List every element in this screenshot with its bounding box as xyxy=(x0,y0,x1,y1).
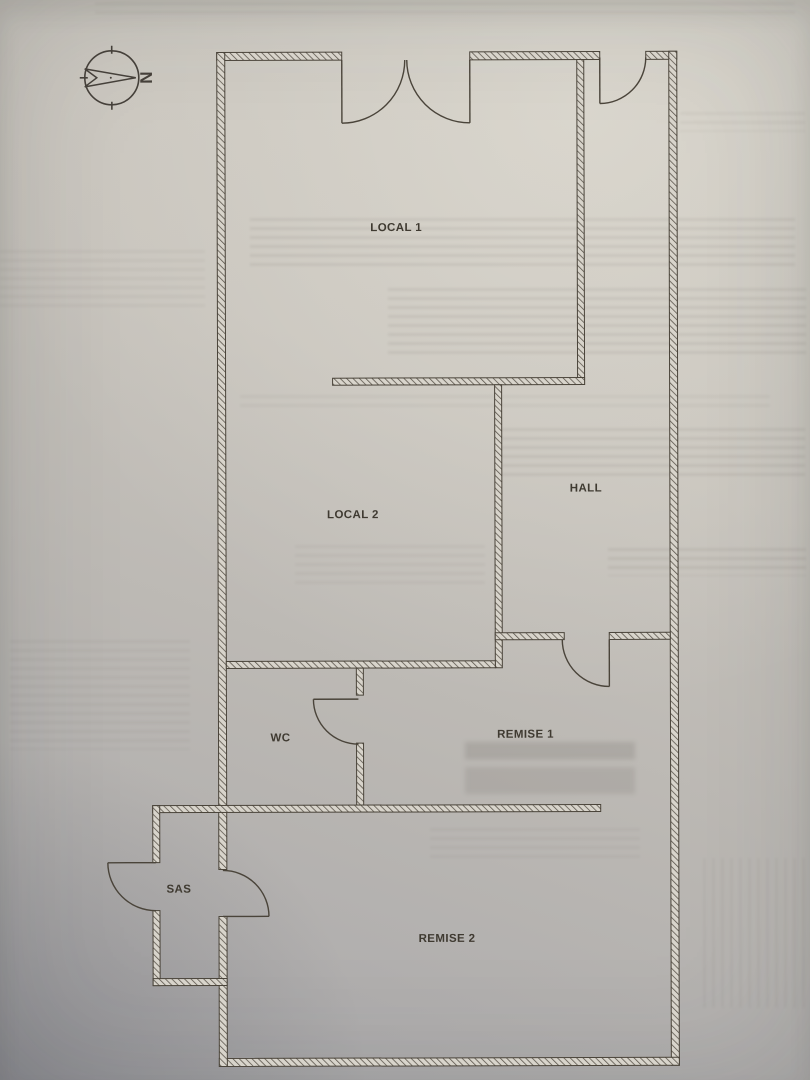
room-label-local1: LOCAL 1 xyxy=(370,222,422,234)
wall-local2-bottom xyxy=(226,661,495,669)
compass-north-label: N xyxy=(136,72,155,84)
door-wc xyxy=(313,699,358,744)
door-hall-to-remise1 xyxy=(562,639,609,686)
door-swing-arc xyxy=(108,863,156,911)
double-door-local1-entrance xyxy=(342,60,470,123)
wall-sas-left-lower xyxy=(153,911,160,986)
wall-local1-hall xyxy=(577,60,585,385)
wall-bottom-exterior xyxy=(219,1057,679,1066)
room-label-local2: LOCAL 2 xyxy=(327,509,379,521)
room-label-remise1: REMISE 1 xyxy=(497,729,554,741)
room-label-wc: WC xyxy=(271,732,291,744)
door-swing-arc xyxy=(600,57,646,103)
door-sas-exterior xyxy=(108,863,156,911)
wall-hall-bottom-right xyxy=(609,632,670,639)
scanned-floorplan-photo: N LOCAL 1 LOCAL 2 HALL WC REMISE 1 SAS R… xyxy=(0,0,810,1080)
room-label-remise2: REMISE 2 xyxy=(419,933,476,945)
door-hall-entrance xyxy=(600,57,646,103)
door-swing-arc xyxy=(313,699,358,744)
floor-plan-drawing: N LOCAL 1 LOCAL 2 HALL WC REMISE 1 SAS R… xyxy=(0,0,810,1080)
floor-plan: N LOCAL 1 LOCAL 2 HALL WC REMISE 1 SAS R… xyxy=(0,0,810,1080)
wall-right-exterior xyxy=(669,51,680,1065)
wall-local1-bottom xyxy=(333,378,585,386)
door-swing-arc xyxy=(223,870,269,916)
walls xyxy=(151,51,680,1066)
room-labels: LOCAL 1 LOCAL 2 HALL WC REMISE 1 SAS REM… xyxy=(165,221,603,945)
wall-top-left-segment xyxy=(217,52,342,60)
wall-left-exterior-upper xyxy=(217,52,227,869)
doors xyxy=(106,57,648,916)
door-swing-arc xyxy=(562,639,609,686)
wall-wc-right-lower xyxy=(357,743,364,805)
wall-remise-divider xyxy=(153,804,601,812)
wall-hall-bottom-left xyxy=(495,633,564,640)
door-swing-arc xyxy=(342,60,405,123)
room-label-hall: HALL xyxy=(570,482,602,494)
north-compass: N xyxy=(80,46,156,110)
wall-wc-right-upper xyxy=(356,668,363,695)
wall-sas-left-upper xyxy=(153,806,160,863)
wall-sas-bottom xyxy=(153,978,227,985)
wall-local2-hall xyxy=(495,385,503,668)
door-swing-arc xyxy=(407,60,470,123)
door-sas-to-remise2 xyxy=(223,870,269,916)
wall-top-mid-segment xyxy=(470,51,600,59)
compass-center-dot xyxy=(110,77,112,79)
room-label-sas: SAS xyxy=(166,884,191,896)
wall-left-exterior-lower xyxy=(219,916,227,1066)
